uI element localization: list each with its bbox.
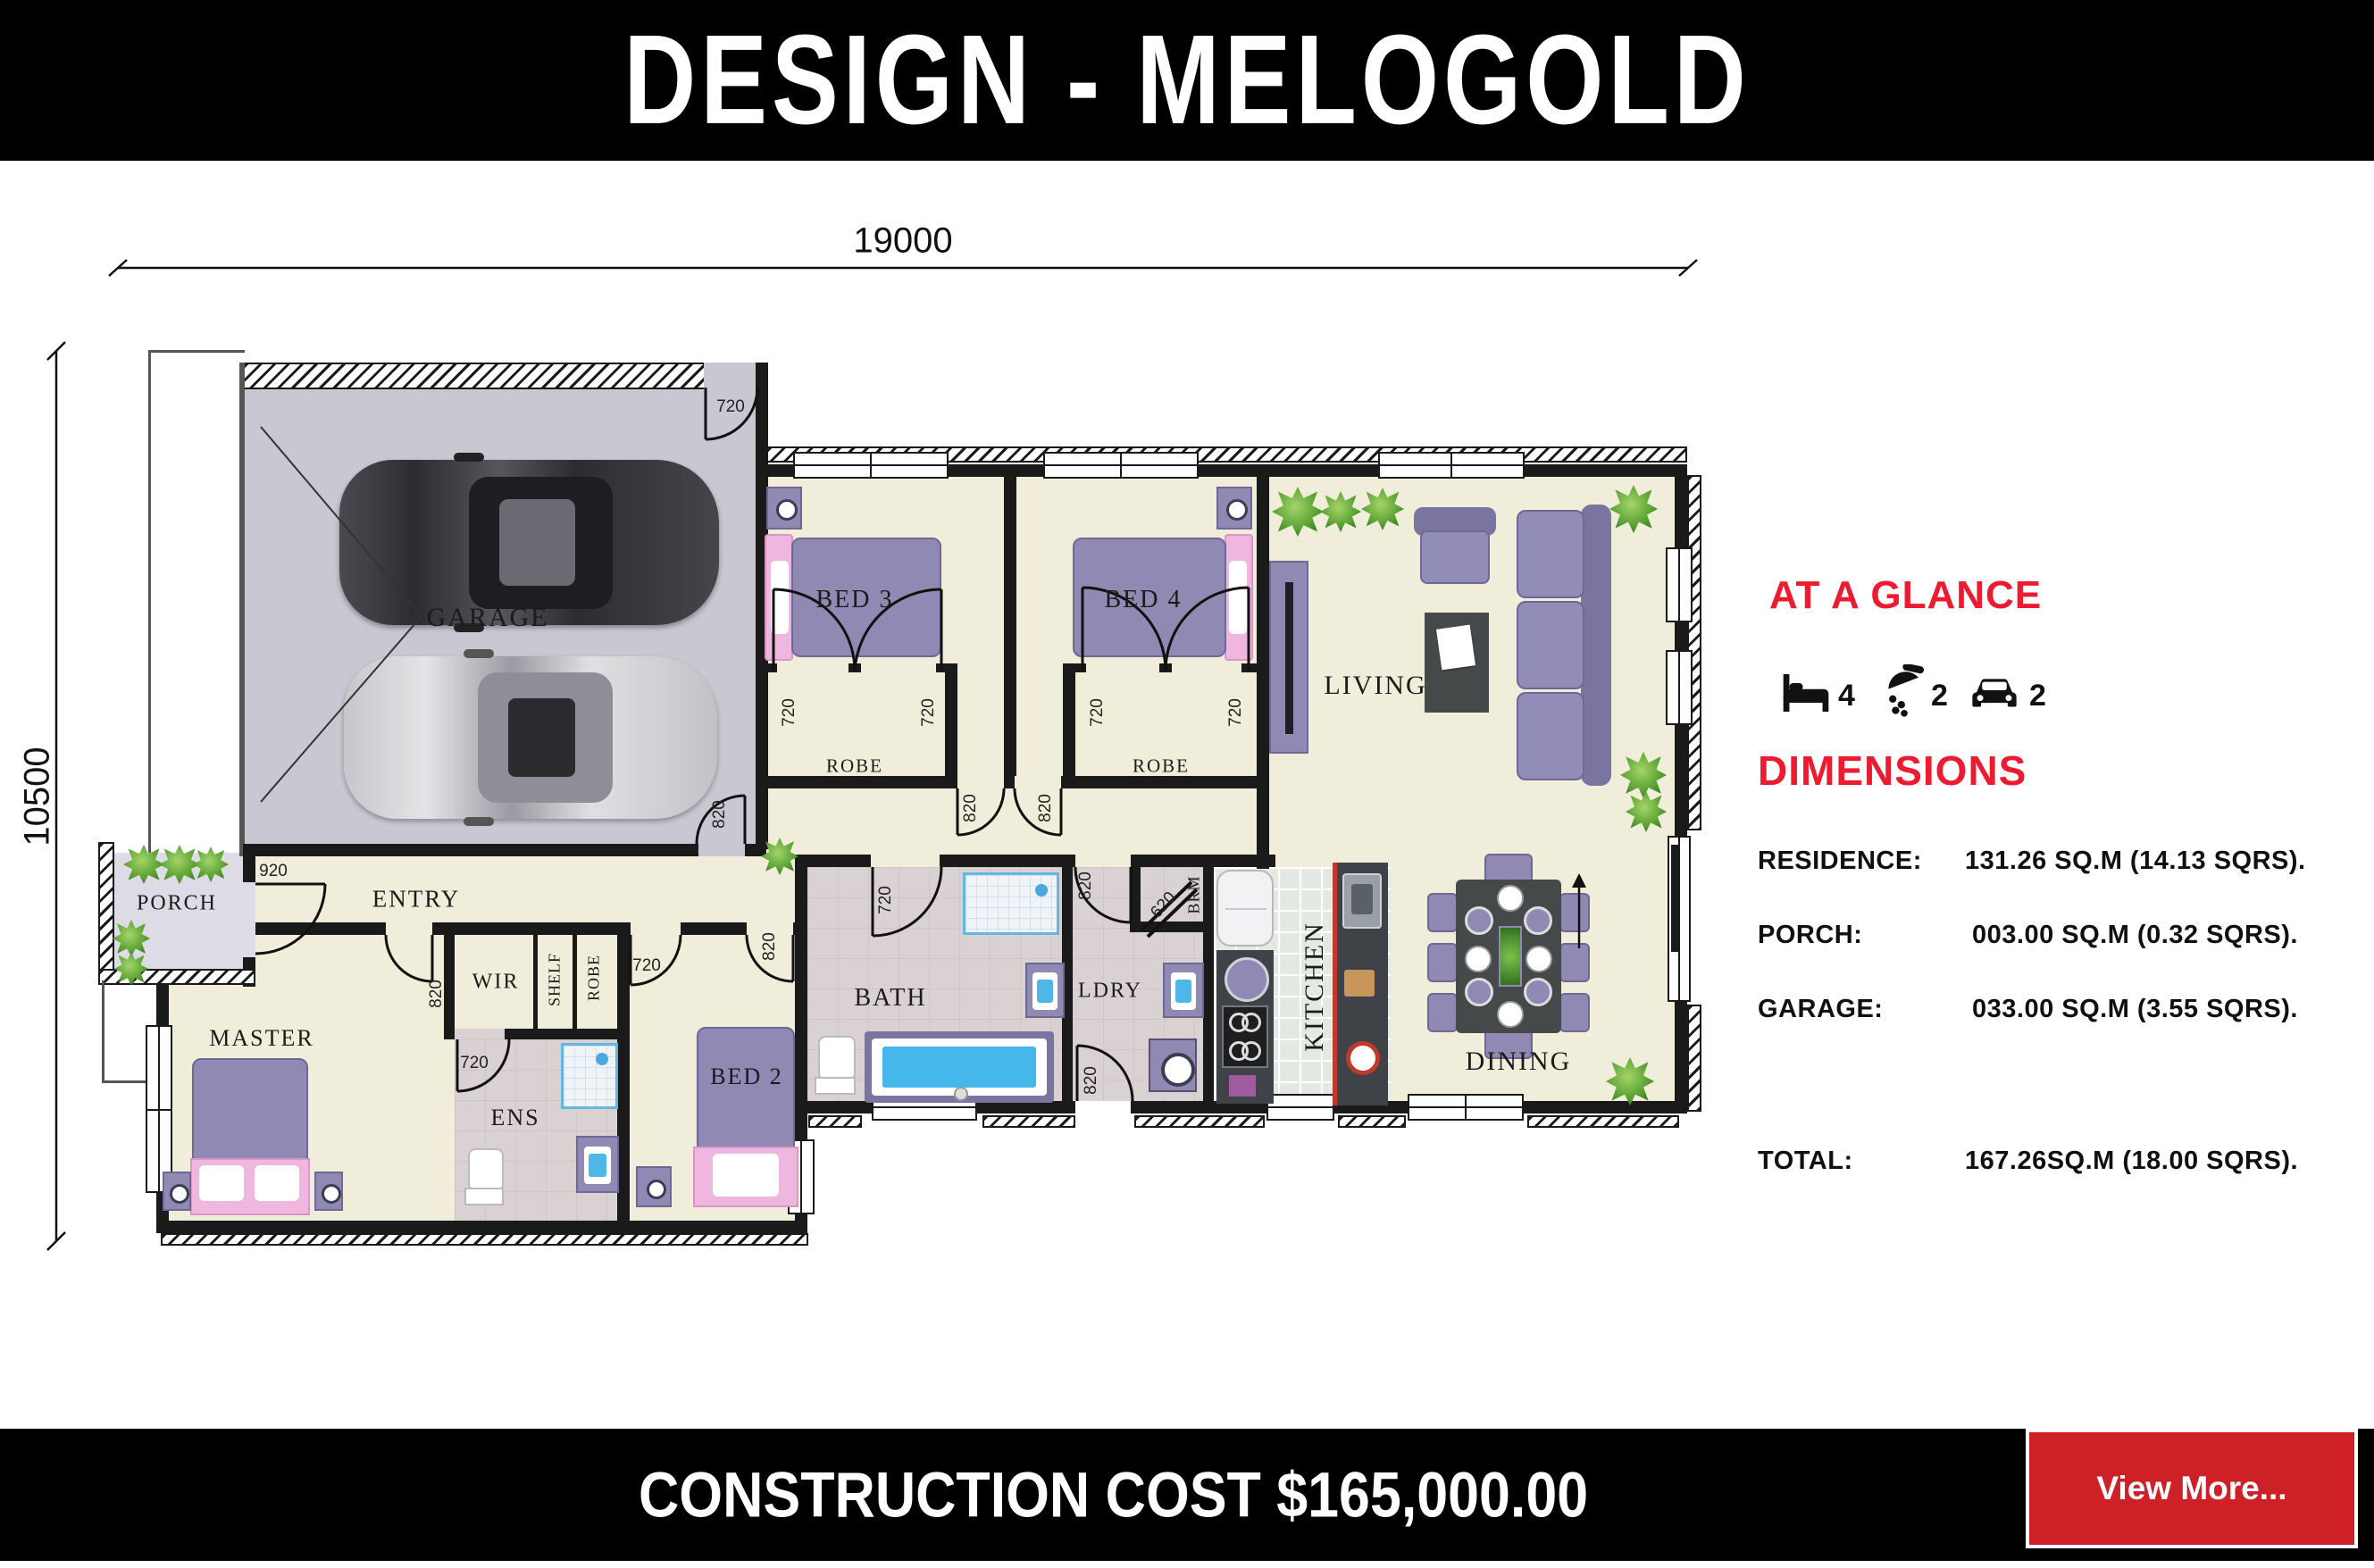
tv-unit [1269, 561, 1308, 754]
bottom-hatch [1338, 1115, 1406, 1128]
eave-line [148, 350, 245, 353]
shower-count: 2 [1931, 679, 1948, 713]
garage-left-wall [239, 363, 245, 856]
plant [1272, 487, 1324, 537]
room-label-kitchen: KITCHEN [1300, 922, 1330, 1052]
dim-row-label: TOTAL: [1758, 1147, 1965, 1176]
bottom-hatch [161, 1233, 808, 1246]
wall [243, 844, 766, 856]
wall [1004, 464, 1016, 788]
door-gap [1075, 1101, 1131, 1113]
door-label-bed4-820: 820 [1036, 794, 1056, 822]
wall [945, 663, 957, 788]
room-label-living: LIVING [1324, 671, 1426, 701]
master-side-table [163, 1172, 191, 1211]
plant [193, 847, 229, 882]
wall [156, 1221, 807, 1233]
dining-chair [1559, 893, 1590, 932]
boundary-line [102, 980, 104, 1082]
dim-row-residence: RESIDENCE: 131.26 SQ.M (14.13 SQRS). [1758, 847, 2306, 876]
wall [766, 663, 777, 672]
window [146, 1025, 172, 1193]
wall [1075, 663, 1086, 672]
window [1043, 452, 1199, 479]
car-icon [1969, 673, 2020, 714]
room-label-bath: BATH [854, 984, 926, 1013]
wall [1159, 663, 1172, 672]
right-exterior-hatch [1687, 1005, 1701, 1112]
bed-count: 4 [1838, 679, 1855, 713]
master-bed [190, 1058, 310, 1221]
door-gap [704, 363, 756, 389]
room-label-brm: BRM [1185, 875, 1204, 913]
dim-row-value: 131.26 SQ.M (14.13 SQRS). [1965, 847, 2306, 876]
window [1666, 650, 1693, 725]
footer-band: CONSTRUCTION COST $165,000.00 [0, 1429, 2374, 1561]
glance-heading: AT A GLANCE [1769, 573, 2042, 618]
fridge [1216, 870, 1274, 947]
coffee-table [1425, 613, 1489, 713]
plant [1620, 752, 1667, 798]
door-gap [243, 882, 255, 957]
dim-width: 19000 [853, 221, 952, 262]
room-label-robe-col: ROBE [585, 955, 604, 1001]
door-gap [455, 1029, 505, 1039]
wall [243, 922, 806, 935]
plant [1609, 485, 1658, 533]
dim-row-porch: PORCH: 003.00 SQ.M (0.32 SQRS). [1758, 921, 2298, 950]
door-label-ens-720: 720 [460, 1054, 489, 1073]
dim-row-garage: GARAGE: 033.00 SQ.M (3.55 SQRS). [1758, 995, 2298, 1024]
door-label-entry-920: 920 [259, 862, 288, 881]
wall [1257, 464, 1269, 869]
porch-hatch [98, 842, 114, 985]
dim-row-label: GARAGE: [1758, 995, 1965, 1024]
dining-table [1456, 880, 1561, 1033]
bed2-side-table [636, 1166, 672, 1207]
door-label-garage-720: 720 [716, 397, 745, 417]
dining-chair [1427, 993, 1458, 1032]
door-gap [631, 922, 681, 935]
bath-toilet [815, 1036, 856, 1097]
dim-row-value: 033.00 SQ.M (3.55 SQRS). [1972, 995, 2298, 1024]
dim-row-value: 003.00 SQ.M (0.32 SQRS). [1972, 921, 2298, 950]
plant [113, 920, 150, 957]
sofa [1517, 505, 1611, 786]
dim-row-label: PORCH: [1758, 921, 1965, 950]
door-label-bath-720: 720 [876, 886, 896, 914]
room-label-robe3: ROBE [826, 755, 883, 778]
bath-shower [963, 872, 1059, 935]
construction-cost: CONSTRUCTION COST $165,000.00 [639, 1457, 1588, 1532]
hall-wall [756, 776, 1267, 788]
kitchen-island [1333, 863, 1388, 1105]
wall [533, 935, 538, 1030]
plant [1626, 791, 1667, 832]
laundry-tub [1163, 963, 1204, 1018]
wall [1063, 663, 1075, 788]
wall [617, 935, 630, 1221]
bath-vanity [1025, 963, 1065, 1018]
bed4-side-table [1216, 487, 1252, 530]
bottom-hatch [1134, 1115, 1265, 1128]
door-gap [698, 844, 745, 856]
door-label-bed3-820: 820 [961, 794, 981, 822]
room-label-entry: ENTRY [372, 886, 461, 913]
room-label-master: MASTER [209, 1025, 313, 1052]
door-gap [871, 855, 940, 867]
wall [848, 663, 861, 672]
car-count: 2 [2029, 679, 2046, 713]
plant [761, 838, 798, 875]
room-label-garage: GARAGE [427, 603, 549, 633]
room-label-shelf: SHELF [546, 953, 564, 1006]
plant [123, 845, 164, 884]
bed-icon [1782, 671, 1830, 714]
armchair [1414, 507, 1496, 588]
door-gap [957, 776, 1004, 788]
shower-icon [1883, 664, 1926, 718]
eave-line [148, 350, 151, 853]
door-label-garage-820: 820 [710, 800, 730, 829]
view-more-button[interactable]: View More... [2026, 1429, 2358, 1548]
room-label-dining: DINING [1466, 1047, 1572, 1077]
bed3-side-table [766, 487, 802, 530]
dim-row-total: TOTAL: 167.26SQ.M (18.00 SQRS). [1758, 1147, 2298, 1176]
wall [573, 935, 577, 1030]
room-label-bed2: BED 2 [710, 1063, 783, 1090]
washing-machine [1149, 1038, 1197, 1092]
door-label-bed2-720: 720 [632, 956, 661, 976]
door-label-bed2-820: 820 [760, 932, 780, 961]
room-label-ldry: LDRY [1078, 980, 1142, 1004]
door-gap [1075, 855, 1131, 867]
dim-row-value: 167.26SQ.M (18.00 SQRS). [1965, 1147, 2298, 1176]
room-label-wir: WIR [472, 971, 520, 995]
car-silver [344, 656, 717, 819]
wall [1203, 855, 1214, 1105]
door-gap [386, 922, 432, 935]
bottom-hatch [982, 1115, 1075, 1128]
window [1266, 1094, 1334, 1121]
plant [1320, 491, 1361, 532]
room-label-porch: PORCH [137, 892, 217, 916]
bed2-bed [693, 1027, 798, 1210]
ens-vanity [576, 1136, 619, 1193]
dining-chair [1559, 943, 1590, 982]
window [793, 452, 949, 479]
door-label-robe3-720b: 720 [919, 698, 939, 727]
master-side-table [314, 1172, 343, 1211]
door-label-ldry-820b: 820 [1082, 1066, 1101, 1095]
dining-chair [1427, 893, 1458, 932]
door-label-master-820: 820 [427, 980, 447, 1008]
door-label-robe4-720b: 720 [1226, 698, 1246, 727]
garage-top-wall [243, 363, 766, 389]
wall [1241, 663, 1257, 672]
plant [114, 952, 148, 986]
kitchen-bench [1216, 950, 1274, 1104]
plant [1606, 1057, 1654, 1105]
ens-toilet [464, 1148, 504, 1207]
wall [1130, 922, 1214, 932]
dimensions-heading: DIMENSIONS [1758, 746, 2027, 795]
room-label-robe4: ROBE [1133, 755, 1190, 778]
room-label-bed3: BED 3 [816, 586, 894, 614]
bottom-hatch [1527, 1115, 1679, 1128]
window [1378, 452, 1525, 479]
plant [1361, 488, 1404, 530]
dining-chair [1427, 943, 1458, 982]
page: DESIGN - MELOGOLD [0, 0, 2374, 1568]
sliding-door [1668, 836, 1691, 1002]
room-label-ens: ENS [490, 1105, 539, 1131]
door-label-robe4-720: 720 [1088, 698, 1108, 727]
window [1666, 547, 1693, 622]
door-label-robe3-720: 720 [780, 698, 799, 727]
bottom-hatch [808, 1115, 862, 1128]
dim-row-label: RESIDENCE: [1758, 847, 1965, 876]
dining-chair [1559, 993, 1590, 1032]
window [1408, 1094, 1524, 1121]
dim-height: 10500 [18, 746, 58, 846]
bath-tub [865, 1031, 1054, 1103]
ens-shower [561, 1043, 618, 1109]
door-gap [1015, 776, 1061, 788]
room-label-bed4: BED 4 [1105, 586, 1183, 614]
wall [936, 663, 957, 672]
car-dark [339, 460, 719, 625]
door-label-ldry-820: 820 [1076, 872, 1096, 900]
